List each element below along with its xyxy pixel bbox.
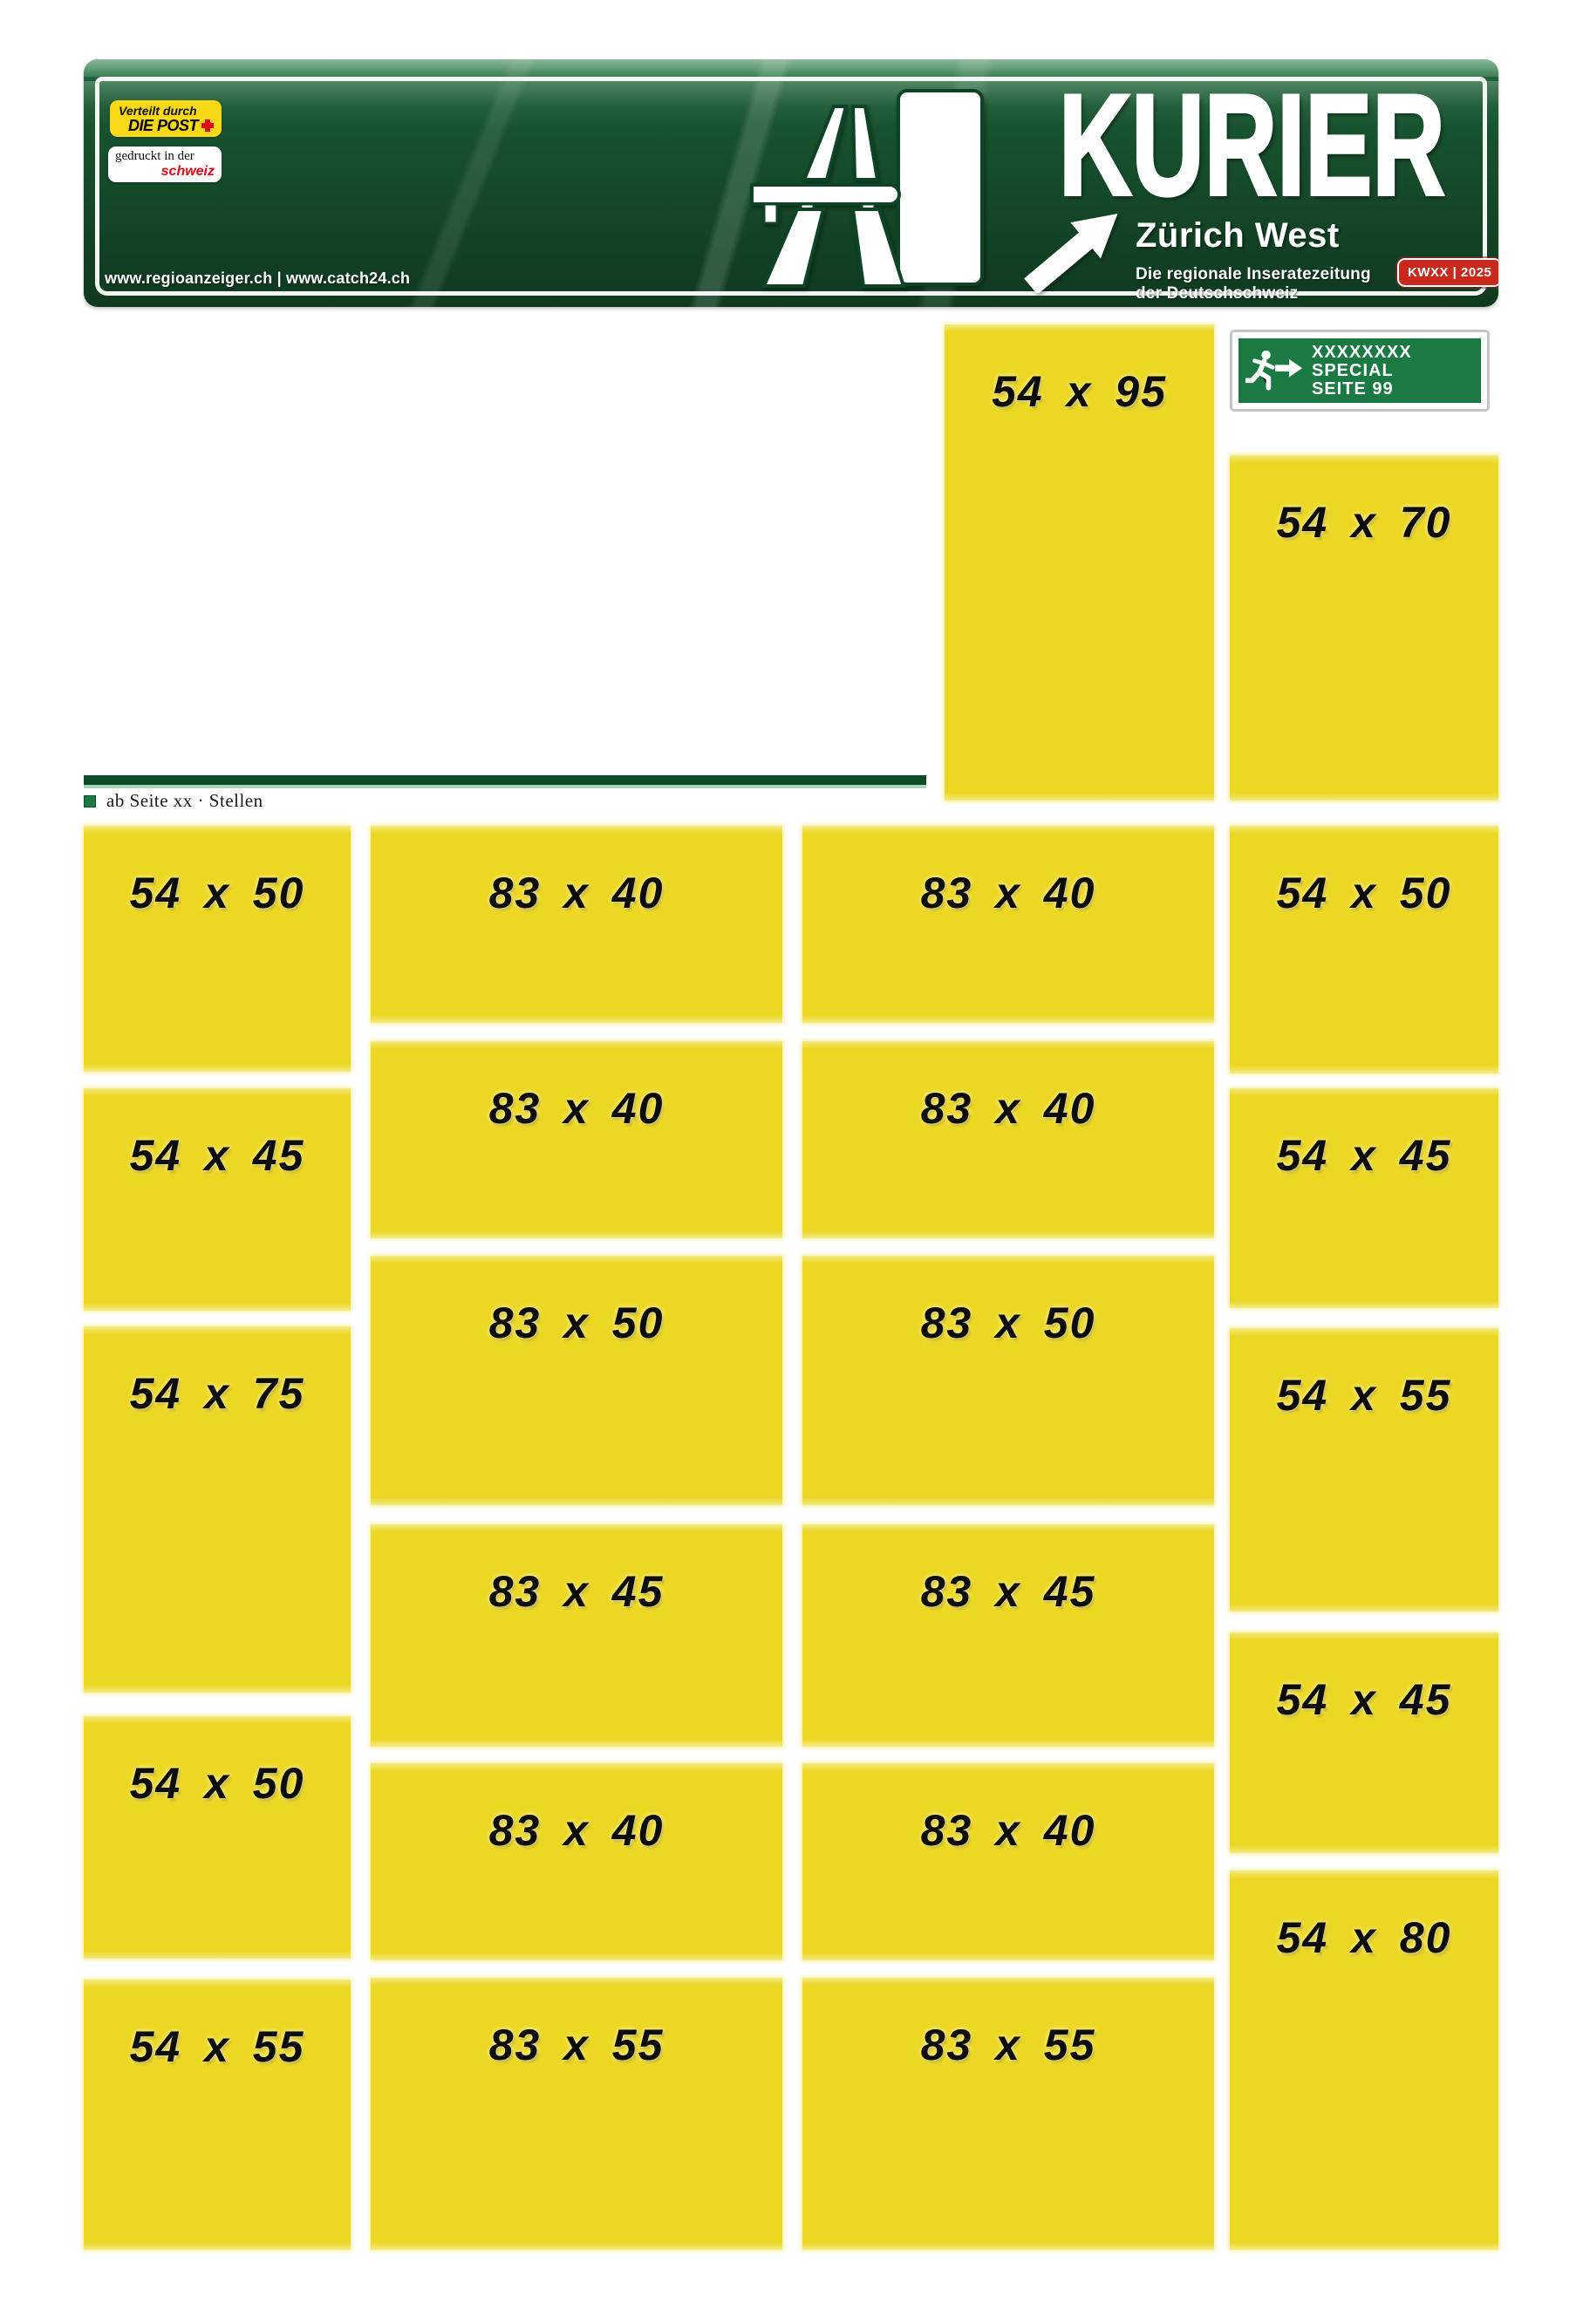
post-badge-label: Verteilt durch [119, 105, 215, 118]
ad-block: 83 x 45 [371, 1524, 782, 1747]
ad-block: 54 x 70 [1230, 455, 1498, 801]
section-divider-bar [84, 775, 926, 788]
masthead-title: KURIER [1059, 73, 1445, 217]
ad-block-label: 83 x 40 [921, 871, 1096, 915]
bullet-square-icon [84, 795, 96, 808]
ad-block: 54 x 75 [84, 1326, 351, 1693]
running-man-icon [1245, 348, 1303, 393]
post-badge-brand: DIE POST [128, 118, 198, 134]
ad-block-label: 54 x 80 [1277, 1916, 1452, 1959]
special-sign-line3: SEITE 99 [1312, 380, 1412, 399]
ad-block-label: 83 x 40 [921, 1809, 1096, 1852]
ad-block-label: 54 x 95 [992, 370, 1167, 413]
autobahn-icon [750, 85, 987, 290]
region-name: Zürich West [1136, 216, 1340, 256]
ad-block-label: 54 x 55 [1277, 1373, 1452, 1417]
ad-block: 54 x 45 [1230, 1632, 1498, 1853]
ad-block-label: 83 x 55 [489, 2023, 665, 2067]
ad-block-label: 54 x 45 [130, 1134, 305, 1177]
direction-arrow-icon [1015, 206, 1133, 293]
ad-block-label: 54 x 50 [130, 871, 305, 915]
ad-block: 83 x 40 [802, 826, 1214, 1023]
ad-block: 54 x 45 [84, 1088, 351, 1311]
tagline-line1: Die regionale Inseratezeitung [1136, 265, 1371, 283]
ad-block-label: 83 x 55 [921, 2023, 1096, 2067]
ad-block: 83 x 55 [371, 1978, 782, 2250]
swiss-post-cross-icon [201, 119, 215, 133]
page: Verteilt durch DIE POST gedruckt in der … [0, 0, 1583, 2324]
ad-block: 54 x 55 [1230, 1328, 1498, 1612]
ad-block-label: 83 x 40 [489, 871, 665, 915]
ad-block-label: 54 x 75 [130, 1372, 305, 1415]
ad-block-label: 83 x 40 [921, 1087, 1096, 1130]
tagline: Die regionale Inseratezeitung der Deutsc… [1136, 265, 1371, 303]
ad-block: 54 x 55 [84, 1980, 351, 2250]
ad-block-label: 54 x 55 [130, 2025, 305, 2068]
special-sign-text: XXXXXXXX SPECIAL SEITE 99 [1312, 344, 1412, 399]
ad-block: 54 x 50 [84, 826, 351, 1072]
section-note-text: ab Seite xx · Stellen [106, 790, 263, 812]
tagline-line2: der Deutschschweiz [1136, 284, 1298, 303]
ad-block: 54 x 80 [1230, 1871, 1498, 2250]
distributed-by-post-badge: Verteilt durch DIE POST [110, 100, 222, 137]
special-sign-line1: XXXXXXXX [1312, 344, 1412, 362]
print-badge-country: schweiz [115, 164, 215, 179]
special-section-sign: XXXXXXXX SPECIAL SEITE 99 [1230, 330, 1490, 412]
ad-block-label: 54 x 70 [1277, 501, 1452, 544]
ad-block: 54 x 50 [1230, 826, 1498, 1073]
ad-block: 83 x 45 [802, 1524, 1214, 1747]
ad-block: 83 x 40 [802, 1041, 1214, 1238]
ad-block: 54 x 45 [1230, 1088, 1498, 1308]
ad-block: 83 x 40 [802, 1763, 1214, 1960]
ad-block: 54 x 50 [84, 1716, 351, 1959]
special-sign-panel: XXXXXXXX SPECIAL SEITE 99 [1237, 337, 1483, 405]
ad-block-label: 54 x 45 [1277, 1678, 1452, 1721]
ad-block: 83 x 40 [371, 1763, 782, 1960]
ad-block-label: 83 x 45 [489, 1570, 665, 1613]
special-sign-line2: SPECIAL [1312, 362, 1412, 380]
header-banner: Verteilt durch DIE POST gedruckt in der … [84, 59, 1498, 307]
print-badge-label: gedruckt in der [115, 149, 215, 164]
ad-block-label: 54 x 45 [1277, 1134, 1452, 1177]
ad-block: 83 x 50 [371, 1256, 782, 1505]
ad-block-label: 83 x 40 [489, 1087, 665, 1130]
section-note: ab Seite xx · Stellen [84, 790, 263, 812]
edition-week-badge: KWXX | 2025 [1397, 258, 1498, 287]
ad-block-label: 54 x 50 [1277, 871, 1452, 915]
ad-block: 83 x 40 [371, 1041, 782, 1238]
printed-in-switzerland-badge: gedruckt in der schweiz [108, 147, 222, 182]
website-urls[interactable]: www.regioanzeiger.ch | www.catch24.ch [105, 269, 410, 288]
ad-block-label: 83 x 40 [489, 1809, 665, 1852]
ad-block: 54 x 95 [945, 324, 1214, 801]
ad-block-label: 83 x 50 [489, 1301, 665, 1345]
ad-block-label: 83 x 50 [921, 1301, 1096, 1345]
ad-block: 83 x 40 [371, 826, 782, 1023]
ad-block: 83 x 50 [802, 1256, 1214, 1505]
ad-block-label: 83 x 45 [921, 1570, 1096, 1613]
ad-block: 83 x 55 [802, 1978, 1214, 2250]
ad-block-label: 54 x 50 [130, 1762, 305, 1805]
